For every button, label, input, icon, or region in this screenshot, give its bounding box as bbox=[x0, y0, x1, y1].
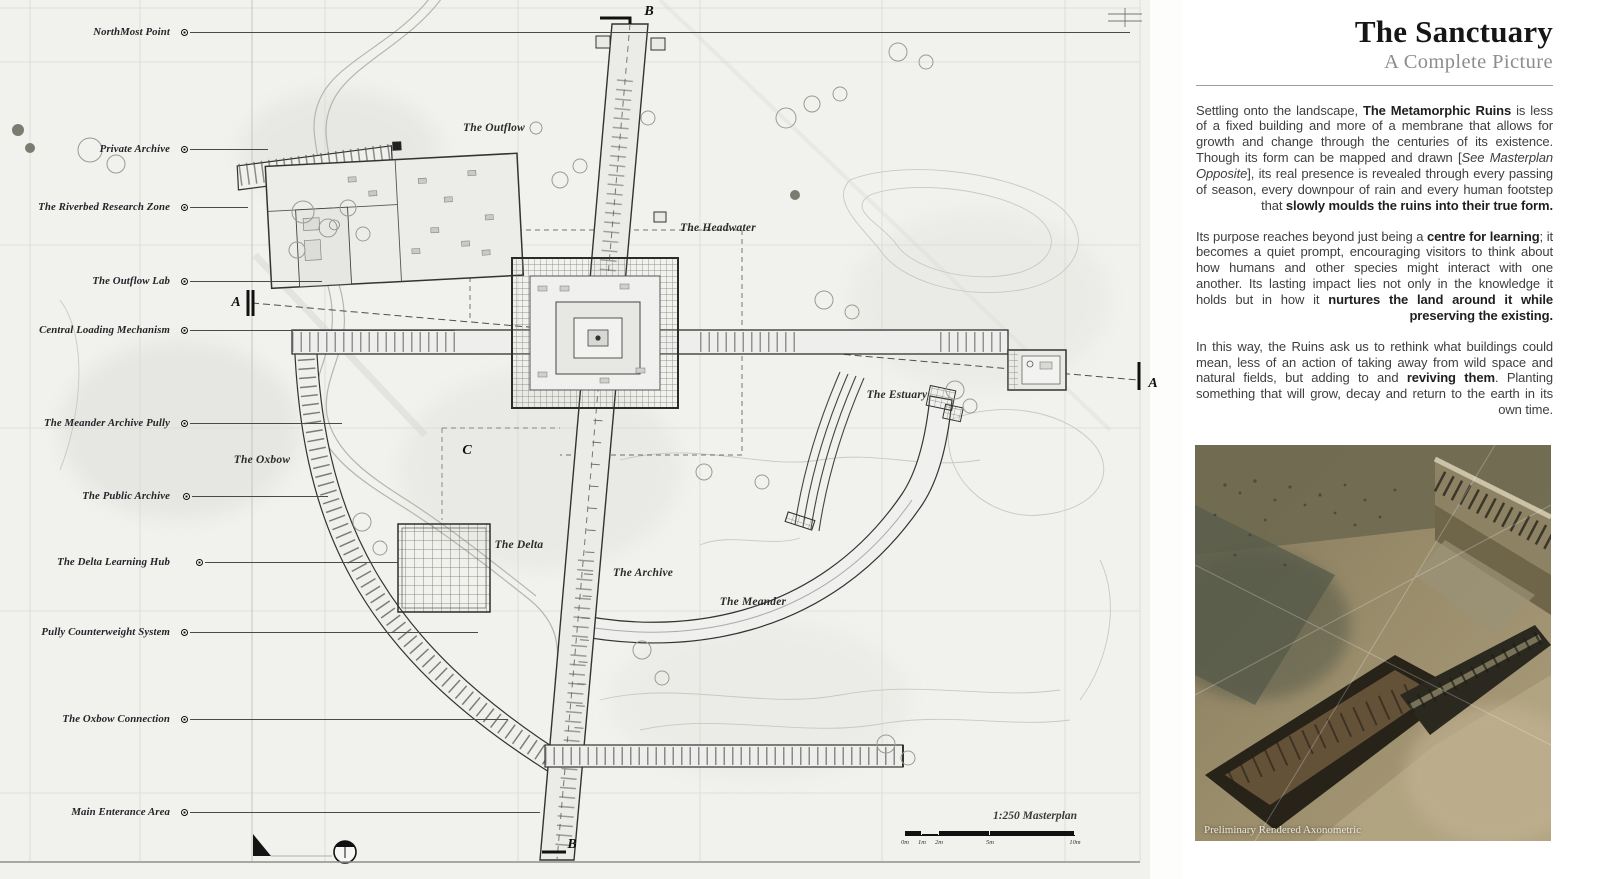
section-marker-letter: B bbox=[644, 4, 653, 20]
map-label: The Estuary bbox=[867, 389, 928, 401]
section-marker-letter: A bbox=[1148, 376, 1157, 392]
scale-bar: 1:250 Masterplan 0m1m2m5m10m bbox=[905, 810, 1077, 837]
map-label: The Delta bbox=[495, 539, 544, 551]
scale-caption: 1:250 Masterplan bbox=[905, 810, 1077, 822]
plan-key-label: Pully Counterweight System bbox=[0, 626, 170, 638]
scale-track: 0m1m2m5m10m bbox=[905, 831, 1077, 837]
leader-line bbox=[190, 330, 455, 331]
entrance-walkway bbox=[545, 745, 903, 767]
leader-line bbox=[190, 719, 508, 720]
leader-line bbox=[190, 632, 478, 633]
leader-line bbox=[190, 423, 342, 424]
section-marker-letter: C bbox=[462, 443, 471, 459]
plan-key-label: The Public Archive bbox=[0, 490, 170, 502]
marker-dot-icon bbox=[181, 809, 188, 816]
leader-line bbox=[190, 812, 540, 813]
section-marker-letter: A bbox=[231, 295, 240, 311]
body-paragraph-2: Its purpose reaches beyond just being a … bbox=[1196, 229, 1553, 324]
plan-key-label: The Riverbed Research Zone bbox=[0, 201, 170, 213]
scale-tick-label: 5m bbox=[986, 839, 994, 846]
marker-dot-icon bbox=[181, 327, 188, 334]
leader-line bbox=[190, 207, 248, 208]
body-paragraph-1: Settling onto the landscape, The Metamor… bbox=[1196, 103, 1553, 214]
page-title: The Sanctuary bbox=[1196, 16, 1553, 49]
axonometric-render: Preliminary Rendered Axonometric bbox=[1195, 445, 1551, 841]
plan-key-label: Central Loading Mechanism bbox=[0, 324, 170, 336]
scale-tick-label: 0m bbox=[901, 839, 909, 846]
portfolio-sheet: 1:250 Masterplan 0m1m2m5m10m NorthMost P… bbox=[0, 0, 1600, 879]
map-label: The Outflow bbox=[463, 122, 525, 134]
leader-line bbox=[190, 149, 268, 150]
scale-segment bbox=[939, 831, 989, 835]
plan-key-label: Main Enterance Area bbox=[0, 806, 170, 818]
leader-line bbox=[190, 281, 322, 282]
marker-dot-icon bbox=[181, 29, 188, 36]
axonometric-artwork bbox=[1195, 445, 1551, 841]
plan-key-label: Private Archive bbox=[0, 143, 170, 155]
scale-segment bbox=[922, 834, 938, 835]
map-label: The Oxbow bbox=[234, 454, 290, 466]
section-marker-letter: B bbox=[567, 837, 576, 853]
body-paragraph-3: In this way, the Ruins ask us to rethink… bbox=[1196, 339, 1553, 418]
map-label: The Archive bbox=[613, 567, 673, 579]
marker-dot-icon bbox=[181, 204, 188, 211]
map-label: The Meander bbox=[720, 596, 786, 608]
leader-line bbox=[192, 496, 328, 497]
marker-dot-icon bbox=[181, 716, 188, 723]
plan-key-label: NorthMost Point bbox=[0, 26, 170, 38]
map-label: The Headwater bbox=[680, 222, 756, 234]
leader-line bbox=[205, 562, 398, 563]
page-subtitle: A Complete Picture bbox=[1196, 51, 1553, 74]
marker-dot-icon bbox=[181, 420, 188, 427]
leader-line bbox=[190, 32, 1130, 33]
marker-dot-icon bbox=[181, 278, 188, 285]
marker-dot-icon bbox=[183, 493, 190, 500]
scale-tick-label: 10m bbox=[1069, 839, 1080, 846]
delta-pad bbox=[398, 524, 490, 612]
plan-key-label: The Outflow Lab bbox=[0, 275, 170, 287]
marker-dot-icon bbox=[181, 629, 188, 636]
scale-tick-label: 1m bbox=[918, 839, 926, 846]
marker-dot-icon bbox=[181, 146, 188, 153]
scale-tick-label: 2m bbox=[935, 839, 943, 846]
masterplan-area: 1:250 Masterplan 0m1m2m5m10m NorthMost P… bbox=[0, 0, 1183, 879]
plan-key-label: The Meander Archive Pully bbox=[0, 417, 170, 429]
compass-icon bbox=[334, 841, 356, 863]
text-panel: The Sanctuary A Complete Picture Settlin… bbox=[1183, 0, 1600, 879]
image-caption: Preliminary Rendered Axonometric bbox=[1204, 824, 1361, 836]
central-building bbox=[512, 258, 678, 408]
plan-key-label: The Delta Learning Hub bbox=[0, 556, 170, 568]
marker-dot-icon bbox=[196, 559, 203, 566]
title-divider bbox=[1196, 85, 1553, 86]
scale-segment bbox=[990, 831, 1074, 835]
scale-segment bbox=[905, 831, 921, 835]
plan-key-label: The Oxbow Connection bbox=[0, 713, 170, 725]
masterplan-drawing bbox=[0, 0, 1183, 879]
